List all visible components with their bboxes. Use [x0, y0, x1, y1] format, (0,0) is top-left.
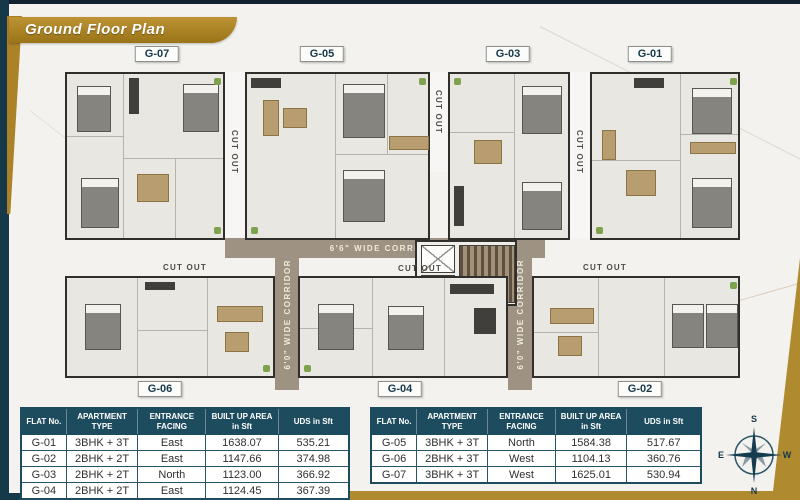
furniture-kitchen-counter: [634, 78, 664, 88]
corridor-vertical-left: 6'0" WIDE CORRIDOR: [275, 238, 299, 390]
data-cell: G-04: [21, 483, 66, 500]
unit-g02: [532, 276, 740, 378]
plant-icon: [454, 78, 461, 85]
furniture-bed: [706, 304, 738, 348]
cutout-label: CUT OUT: [230, 130, 239, 174]
header-cell: APARTMENT TYPE: [66, 408, 137, 435]
plant-icon: [214, 227, 221, 234]
furniture-table: [626, 170, 656, 196]
corridor-vertical-left-label: 6'0" WIDE CORRIDOR: [283, 259, 292, 369]
furniture-bed: [85, 304, 121, 350]
room-divider: [680, 74, 681, 238]
cutout-label: CUT OUT: [575, 130, 584, 174]
furniture-wardrobe: [145, 282, 175, 290]
room-divider: [444, 278, 445, 376]
furniture-bed: [672, 304, 704, 348]
furniture-kitchen-counter: [450, 284, 494, 294]
header-cell: UDS in Sft: [278, 408, 349, 435]
room-divider: [387, 74, 388, 154]
data-cell: G-03: [21, 467, 66, 483]
unit-g04: [298, 276, 508, 378]
room-divider: [514, 74, 515, 238]
room-divider: [592, 160, 680, 161]
room-divider: [335, 154, 428, 155]
furniture-kitchen-counter: [454, 186, 464, 226]
room-divider: [335, 74, 336, 238]
cutout-label: CUT OUT: [163, 263, 207, 272]
data-cell: 3BHK + 3T: [417, 467, 488, 484]
header-banner: Ground Floor Plan: [9, 17, 237, 43]
flat-table-right: FLAT No. APARTMENT TYPE ENTRANCE FACING …: [370, 407, 702, 484]
furniture-table: [225, 332, 249, 352]
room-divider: [175, 158, 176, 238]
room-divider: [372, 278, 373, 376]
furniture-bed: [692, 178, 732, 228]
compass-label-right: W: [783, 450, 792, 460]
data-cell: G-02: [21, 451, 66, 467]
furniture-dining-table: [137, 174, 169, 202]
room-divider: [137, 278, 138, 376]
cutout-label: CUT OUT: [398, 264, 442, 273]
data-cell: G-05: [371, 435, 417, 451]
header-cell: ENTRANCE FACING: [138, 408, 206, 435]
data-cell: 3BHK + 3T: [417, 435, 488, 451]
plant-icon: [419, 78, 426, 85]
table-row: G-04 2BHK + 2T East 1124.45 367.39: [21, 483, 349, 500]
data-cell: 3BHK + 3T: [66, 435, 137, 451]
furniture-sofa: [602, 130, 616, 160]
furniture-console: [389, 136, 429, 150]
data-cell: 530.94: [627, 467, 701, 484]
furniture-table: [474, 140, 502, 164]
data-cell: West: [488, 451, 556, 467]
furniture-bed: [318, 304, 354, 350]
unit-label-g03: G-03: [486, 46, 530, 62]
furniture-table: [283, 108, 307, 128]
floor-plan: 6'6" WIDE CORRIDOR 6'0" WIDE CORRIDOR 6'…: [62, 68, 744, 390]
table-row: G-02 2BHK + 2T East 1147.66 374.98: [21, 451, 349, 467]
data-cell: 1638.07: [206, 435, 278, 451]
header-cell: FLAT No.: [21, 408, 66, 435]
unit-g06: [65, 276, 275, 378]
data-cell: East: [138, 451, 206, 467]
unit-label-g04: G-04: [378, 381, 422, 397]
room-divider: [137, 330, 207, 331]
furniture-console: [690, 142, 736, 154]
plant-icon: [251, 227, 258, 234]
data-cell: 1625.01: [555, 467, 627, 484]
left-gold-accent: [7, 16, 22, 214]
data-cell: G-01: [21, 435, 66, 451]
unit-label-g05: G-05: [300, 46, 344, 62]
table-row: G-03 2BHK + 2T North 1123.00 366.92: [21, 467, 349, 483]
furniture-sofa: [550, 308, 594, 324]
furniture-bed: [522, 86, 562, 134]
flat-table-left: FLAT No. APARTMENT TYPE ENTRANCE FACING …: [20, 407, 350, 500]
cutout-label: CUT OUT: [434, 90, 443, 134]
data-cell: 1123.00: [206, 467, 278, 483]
data-cell: 1147.66: [206, 451, 278, 467]
unit-g01: [590, 72, 740, 240]
compass-label-top: S: [751, 414, 757, 424]
room-divider: [123, 158, 223, 159]
room-divider: [67, 136, 123, 137]
furniture-kitchen-counter: [251, 78, 281, 88]
room-divider: [450, 132, 514, 133]
table-row: G-07 3BHK + 3T West 1625.01 530.94: [371, 467, 701, 484]
table-header-row: FLAT No. APARTMENT TYPE ENTRANCE FACING …: [371, 408, 701, 435]
header-cell: FLAT No.: [371, 408, 417, 435]
data-cell: 2BHK + 2T: [66, 451, 137, 467]
header-cell: BUILT UP AREA in Sft: [206, 408, 278, 435]
furniture-bed: [388, 306, 424, 350]
plant-icon: [263, 365, 270, 372]
furniture-table: [558, 336, 582, 356]
furniture-bed: [77, 86, 111, 132]
furniture-bed: [343, 170, 385, 222]
room-divider: [598, 278, 599, 376]
page-title: Ground Floor Plan: [9, 17, 237, 43]
data-cell: North: [138, 467, 206, 483]
unit-label-g02: G-02: [618, 381, 662, 397]
table-row: G-06 2BHK + 3T West 1104.13 360.76: [371, 451, 701, 467]
room-divider: [664, 278, 665, 376]
plant-icon: [596, 227, 603, 234]
data-cell: East: [138, 483, 206, 500]
unit-label-g01: G-01: [628, 46, 672, 62]
furniture-sofa: [217, 306, 263, 322]
table-row: G-05 3BHK + 3T North 1584.38 517.67: [371, 435, 701, 451]
data-cell: 535.21: [278, 435, 349, 451]
furniture-sofa: [263, 100, 279, 136]
data-cell: 360.76: [627, 451, 701, 467]
plant-icon: [214, 78, 221, 85]
data-cell: 367.39: [278, 483, 349, 500]
top-border: [0, 0, 800, 4]
furniture-bed: [692, 88, 732, 134]
unit-g05: [245, 72, 430, 240]
furniture-bed: [522, 182, 562, 230]
room-divider: [534, 332, 598, 333]
data-cell: 1104.13: [555, 451, 627, 467]
data-cell: 366.92: [278, 467, 349, 483]
header-cell: BUILT UP AREA in Sft: [555, 408, 627, 435]
furniture-kitchen-counter: [129, 78, 139, 114]
unit-label-g06: G-06: [138, 381, 182, 397]
compass-label-left: E: [718, 450, 724, 460]
data-cell: 1584.38: [555, 435, 627, 451]
data-cell: G-06: [371, 451, 417, 467]
cutout-label: CUT OUT: [583, 263, 627, 272]
unit-g07: [65, 72, 225, 240]
data-cell: West: [488, 467, 556, 484]
furniture-kitchen-appliance: [474, 308, 496, 334]
data-cell: 374.98: [278, 451, 349, 467]
unit-g03: [448, 72, 570, 240]
room-divider: [207, 278, 208, 376]
header-cell: UDS in Sft: [627, 408, 701, 435]
data-cell: 517.67: [627, 435, 701, 451]
data-cell: North: [488, 435, 556, 451]
furniture-bed: [81, 178, 119, 228]
data-cell: G-07: [371, 467, 417, 484]
plant-icon: [730, 78, 737, 85]
room-divider: [680, 134, 738, 135]
header-cell: APARTMENT TYPE: [417, 408, 488, 435]
compass-icon: S N E W: [716, 410, 792, 496]
data-cell: 2BHK + 2T: [66, 483, 137, 500]
furniture-bed: [183, 84, 219, 132]
table-row: G-01 3BHK + 3T East 1638.07 535.21: [21, 435, 349, 451]
plant-icon: [304, 365, 311, 372]
plant-icon: [730, 282, 737, 289]
data-cell: 1124.45: [206, 483, 278, 500]
room-divider: [123, 74, 124, 238]
furniture-bed: [343, 84, 385, 138]
data-cell: East: [138, 435, 206, 451]
unit-label-g07: G-07: [135, 46, 179, 62]
header-cell: ENTRANCE FACING: [488, 408, 556, 435]
table-header-row: FLAT No. APARTMENT TYPE ENTRANCE FACING …: [21, 408, 349, 435]
data-cell: 2BHK + 3T: [417, 451, 488, 467]
compass-label-bottom: N: [751, 486, 758, 496]
data-cell: 2BHK + 2T: [66, 467, 137, 483]
